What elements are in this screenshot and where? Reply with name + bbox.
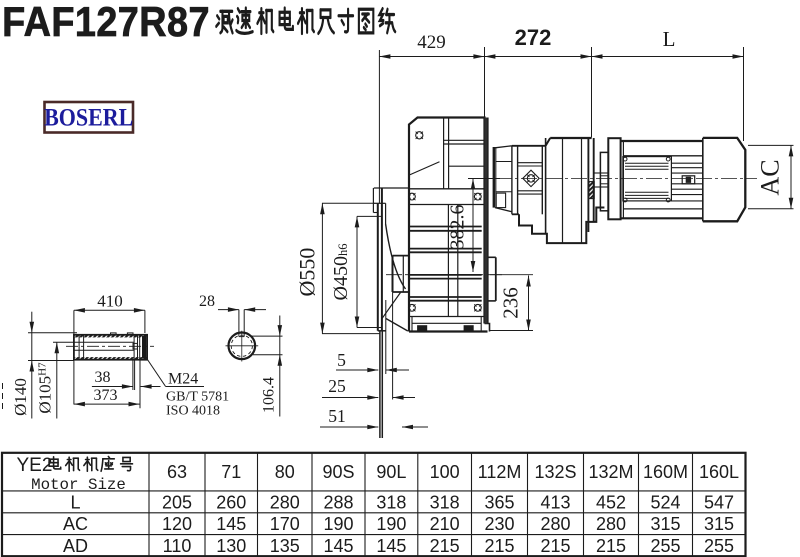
svg-text:63: 63 <box>167 462 187 482</box>
svg-text:260: 260 <box>216 492 246 512</box>
svg-text:365: 365 <box>484 492 514 512</box>
svg-text:100: 100 <box>430 462 460 482</box>
svg-text:215: 215 <box>596 536 626 556</box>
svg-text:272: 272 <box>515 25 552 50</box>
svg-text:280: 280 <box>540 514 570 534</box>
svg-text:Ø550: Ø550 <box>295 248 320 297</box>
svg-text:L: L <box>70 492 80 512</box>
svg-text:YE2: YE2 <box>17 455 53 476</box>
svg-text:ISO 4018: ISO 4018 <box>166 404 220 419</box>
svg-text:L: L <box>663 27 676 51</box>
svg-text:80: 80 <box>275 462 295 482</box>
svg-text:71: 71 <box>221 462 241 482</box>
svg-text:Ø140: Ø140 <box>11 378 30 416</box>
svg-text:135: 135 <box>270 536 300 556</box>
svg-text:190: 190 <box>376 514 406 534</box>
svg-text:382.6: 382.6 <box>447 205 469 250</box>
svg-text:145: 145 <box>376 536 406 556</box>
svg-text:160M: 160M <box>643 462 688 482</box>
svg-text:90L: 90L <box>376 462 406 482</box>
svg-text:373: 373 <box>94 387 118 404</box>
svg-text:112M: 112M <box>478 462 522 482</box>
svg-text:318: 318 <box>430 492 460 512</box>
svg-text:280: 280 <box>270 492 300 512</box>
svg-text:215: 215 <box>540 536 570 556</box>
svg-text:Motor Size: Motor Size <box>31 476 126 494</box>
svg-text:AC: AC <box>756 159 785 195</box>
svg-text:413: 413 <box>540 492 570 512</box>
svg-text:315: 315 <box>650 514 680 534</box>
svg-text:288: 288 <box>323 492 353 512</box>
svg-text:145: 145 <box>323 536 353 556</box>
svg-text:28: 28 <box>199 293 215 310</box>
svg-text:205: 205 <box>162 492 192 512</box>
svg-text:318: 318 <box>376 492 406 512</box>
svg-text:FAF127R87: FAF127R87 <box>2 0 210 45</box>
svg-text:AC: AC <box>63 514 88 534</box>
svg-text:452: 452 <box>596 492 626 512</box>
svg-text:51: 51 <box>328 406 346 426</box>
svg-text:BOSERL: BOSERL <box>44 104 133 132</box>
svg-text:255: 255 <box>650 536 680 556</box>
svg-text:236: 236 <box>499 287 523 319</box>
svg-text:145: 145 <box>216 514 246 534</box>
svg-text:AD: AD <box>63 536 88 556</box>
svg-text:255: 255 <box>704 536 734 556</box>
svg-text:280: 280 <box>596 514 626 534</box>
svg-text:132S: 132S <box>534 462 576 482</box>
svg-text:25: 25 <box>328 376 346 396</box>
svg-text:230: 230 <box>484 514 514 534</box>
svg-text:429: 429 <box>417 32 446 53</box>
svg-text:90S: 90S <box>322 462 354 482</box>
svg-text:132M: 132M <box>588 462 633 482</box>
svg-text:GB/T 5781: GB/T 5781 <box>166 390 229 405</box>
svg-text:160L: 160L <box>699 462 739 482</box>
svg-text:M24: M24 <box>168 371 198 388</box>
svg-text:215: 215 <box>484 536 514 556</box>
svg-text:410: 410 <box>97 292 123 311</box>
svg-text:170: 170 <box>270 514 300 534</box>
svg-text:130: 130 <box>216 536 246 556</box>
svg-text:106.4: 106.4 <box>261 377 278 413</box>
svg-text:38: 38 <box>95 369 111 386</box>
svg-text:5: 5 <box>337 350 346 370</box>
svg-text:524: 524 <box>650 492 680 512</box>
svg-text:215: 215 <box>430 536 460 556</box>
svg-text:190: 190 <box>323 514 353 534</box>
svg-text:547: 547 <box>704 492 734 512</box>
svg-text:110: 110 <box>163 536 192 556</box>
svg-text:315: 315 <box>704 514 734 534</box>
svg-text:120: 120 <box>162 514 192 534</box>
svg-text:210: 210 <box>430 514 460 534</box>
